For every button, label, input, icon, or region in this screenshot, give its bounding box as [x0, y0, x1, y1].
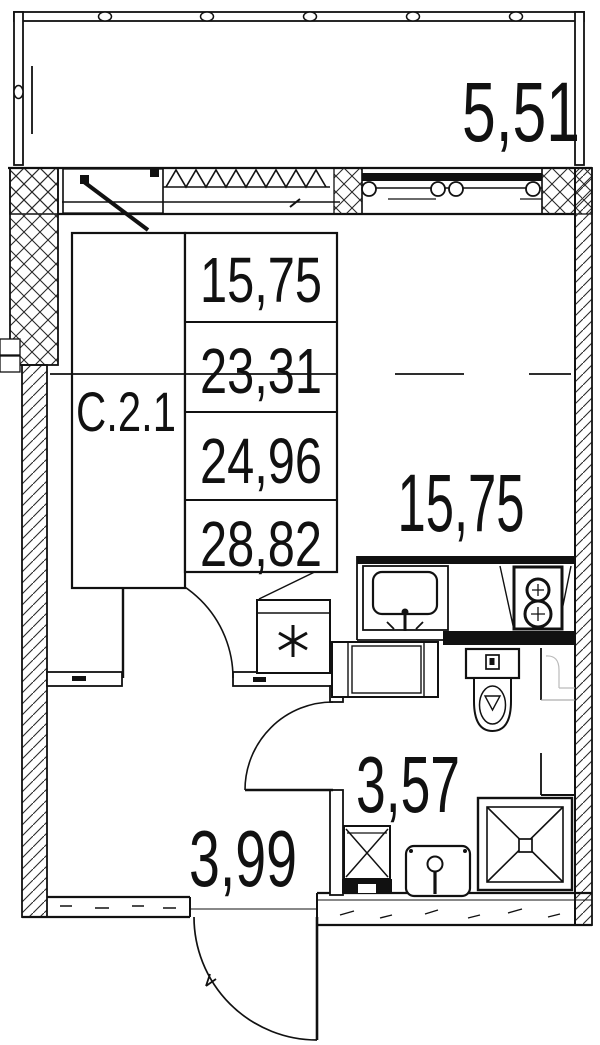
unit-label: С.2.1	[76, 380, 176, 443]
area-table-cell: 28,82	[200, 508, 322, 580]
vent-duct	[541, 648, 575, 795]
washbasin	[406, 846, 470, 896]
room-area-label: 15,75	[398, 458, 525, 549]
floor-plan-svg: 5,51	[0, 0, 600, 1045]
glazing-mullion	[407, 12, 420, 21]
hallway-area-label: 3,99	[189, 814, 297, 903]
bathroom-area-label: 3,57	[356, 740, 460, 829]
wall-left	[0, 168, 58, 917]
balcony: 5,51	[14, 12, 584, 165]
wall-top	[8, 168, 592, 230]
glazing-mullion	[304, 12, 317, 21]
partition-room-hallway	[47, 672, 343, 686]
floor-plan: 5,51	[0, 0, 600, 1045]
wall-right	[575, 168, 592, 925]
entrance-door	[194, 917, 317, 1040]
fridge	[257, 566, 330, 673]
balcony-area-label: 5,51	[462, 65, 580, 159]
kitchen-counter	[357, 556, 575, 640]
wall-outer-tab	[0, 356, 20, 372]
area-table-cell: 15,75	[200, 244, 322, 316]
partition-kitchen-bathroom	[443, 631, 575, 645]
glazing-mullion	[201, 12, 214, 21]
balcony-door	[63, 168, 163, 230]
area-table: 15,75 23,31 24,96 28,82 С.2.1	[72, 233, 337, 588]
wall-block	[334, 168, 362, 214]
kitchen-sink	[363, 566, 448, 631]
bathroom-cabinet	[332, 642, 438, 697]
gas-stove	[500, 566, 571, 630]
kitchen-window	[362, 168, 542, 214]
washing-machine	[342, 826, 392, 893]
wall-bottom	[22, 893, 592, 925]
area-table-cell: 23,31	[200, 335, 322, 407]
shower-cabin	[478, 798, 572, 890]
wall-outer-tab	[0, 339, 20, 355]
glazing-mullion	[14, 86, 23, 99]
bathroom-door	[245, 702, 333, 790]
glazing-mullion	[510, 12, 523, 21]
area-table-cell: 24,96	[200, 425, 322, 497]
glazing-mullion	[99, 12, 112, 21]
toilet	[466, 649, 519, 731]
entrance-door-arc	[194, 917, 317, 1040]
bathroom-door-arc	[245, 702, 333, 790]
balcony-door-hinge-mark	[150, 168, 159, 177]
